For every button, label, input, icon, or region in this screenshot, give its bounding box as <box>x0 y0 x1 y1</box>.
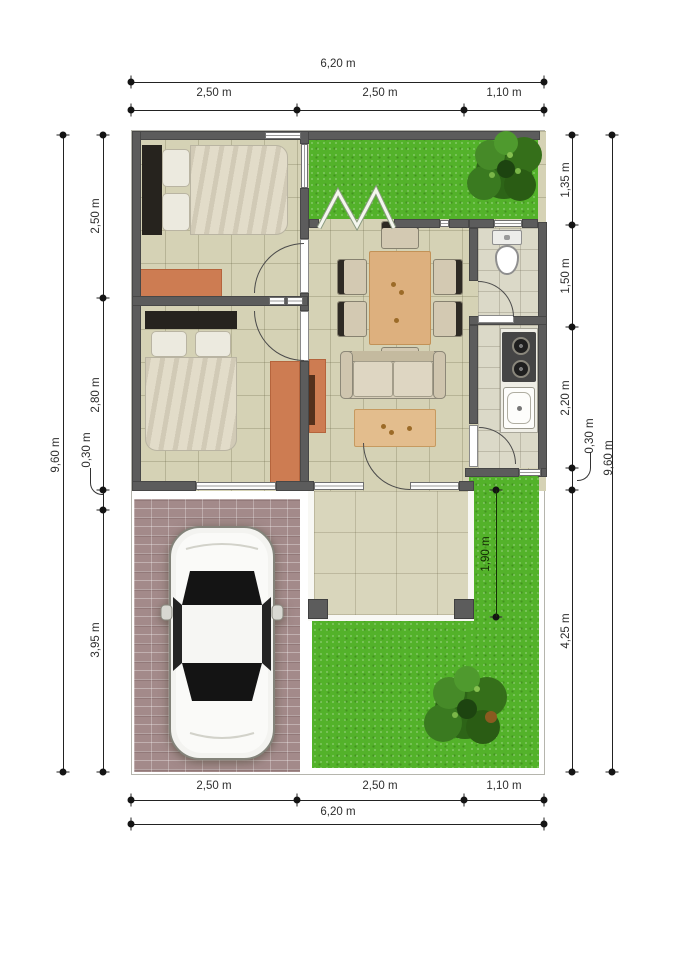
pillow <box>195 331 231 357</box>
dimension-marker <box>569 487 576 494</box>
dining-chair <box>337 301 367 337</box>
dimension-line <box>103 135 104 772</box>
wall <box>300 131 309 144</box>
sink-drain <box>517 406 522 411</box>
floor-plan-canvas: 6,20 m 2,50 m 2,50 m 1,10 m 2,50 m 2,50 … <box>0 0 679 960</box>
bedroom2-double-bed <box>145 311 237 451</box>
dimension-marker <box>609 132 616 139</box>
tree <box>415 659 517 759</box>
wall <box>469 228 478 281</box>
porch-floor <box>308 491 474 621</box>
car <box>160 519 284 767</box>
dimension-marker <box>100 487 107 494</box>
wall <box>469 219 494 228</box>
dimension-marker <box>461 797 468 804</box>
dim-right-total: 9,60 m <box>603 440 615 475</box>
dim-left-seg2: 0,30 m <box>81 432 93 467</box>
window <box>287 297 303 305</box>
stove-burner <box>512 337 530 355</box>
dimension-marker <box>128 797 135 804</box>
dim-top-seg1: 2,50 m <box>362 87 397 99</box>
toilet-tank <box>492 230 522 245</box>
dimension-line <box>131 800 544 801</box>
dimension-marker <box>100 769 107 776</box>
dimension-marker <box>569 769 576 776</box>
dimension-marker <box>541 821 548 828</box>
dimension-marker <box>100 295 107 302</box>
dimension-marker <box>569 222 576 229</box>
wall <box>465 468 519 477</box>
dimension-line <box>572 135 573 772</box>
dimension-marker <box>541 79 548 86</box>
window <box>265 132 301 139</box>
dining-table <box>369 251 431 345</box>
wall <box>449 219 469 228</box>
dim-bottom-seg1: 2,50 m <box>362 780 397 792</box>
table-decor <box>381 424 386 429</box>
lot-plan <box>131 130 545 775</box>
dimension-marker <box>569 465 576 472</box>
pillow <box>151 331 187 357</box>
dim-bottom-seg2: 1,10 m <box>486 780 521 792</box>
window <box>440 220 449 227</box>
bed-blanket <box>145 357 237 451</box>
dimension-marker <box>60 769 67 776</box>
dimension-marker <box>128 821 135 828</box>
porch-pillar-right <box>454 599 474 619</box>
sofa-cushion <box>393 361 433 397</box>
bed-headboard <box>145 311 237 329</box>
flush-button <box>504 235 510 240</box>
dim-right-seg0: 1,35 m <box>560 162 572 197</box>
wall <box>541 468 547 477</box>
dining-chair <box>433 301 463 337</box>
dimension-marker <box>100 507 107 514</box>
bifold-door <box>317 184 397 231</box>
dim-left-seg3: 3,95 m <box>90 622 102 657</box>
kitchen-sink <box>503 387 535 429</box>
wall <box>394 219 440 228</box>
window <box>410 482 459 490</box>
table-decor <box>394 318 399 323</box>
pillow <box>162 149 190 187</box>
dimension-marker <box>461 107 468 114</box>
dimension-marker <box>569 132 576 139</box>
dim-top-total: 6,20 m <box>320 58 355 70</box>
stove-burner <box>512 360 530 378</box>
dimension-marker <box>294 107 301 114</box>
porch-pillar-left <box>308 599 328 619</box>
dimension-marker <box>541 107 548 114</box>
window <box>196 482 276 490</box>
dimension-marker <box>128 79 135 86</box>
stove <box>502 332 536 382</box>
tree <box>460 131 548 215</box>
leader-curve <box>577 452 591 481</box>
window <box>314 482 364 490</box>
wall <box>538 222 547 477</box>
dim-porch-depth: 1,90 m <box>480 536 492 571</box>
wall <box>522 219 538 228</box>
bedroom2-rug <box>270 361 300 485</box>
window <box>494 220 522 227</box>
dimension-marker <box>294 797 301 804</box>
dimension-marker <box>609 769 616 776</box>
dining-chair <box>433 259 463 295</box>
dim-right-seg3: 0,30 m <box>584 418 596 453</box>
dim-right-seg1: 1,50 m <box>560 258 572 293</box>
wall <box>300 188 309 239</box>
bedroom1-rug <box>140 269 222 299</box>
dim-left-total: 9,60 m <box>50 437 62 472</box>
porch-dimension-line <box>496 490 497 617</box>
dim-right-seg4: 4,25 m <box>560 613 572 648</box>
dimension-marker <box>128 107 135 114</box>
table-decor <box>389 430 394 435</box>
dim-right-seg2: 2,20 m <box>560 380 572 415</box>
dimension-marker <box>60 132 67 139</box>
table-decor <box>399 290 404 295</box>
door-leaf <box>469 425 478 467</box>
dim-bottom-seg0: 2,50 m <box>196 780 231 792</box>
dimension-marker <box>569 324 576 331</box>
table-decor <box>391 282 396 287</box>
dimension-marker <box>541 797 548 804</box>
wall <box>132 481 196 491</box>
dim-bottom-total: 6,20 m <box>320 806 355 818</box>
bed-blanket <box>190 145 288 235</box>
dining-chair <box>337 259 367 295</box>
sofa-cushion <box>353 361 393 397</box>
table-decor <box>407 426 412 431</box>
wall <box>132 131 141 491</box>
dimension-line <box>131 824 544 825</box>
dim-top-seg0: 2,50 m <box>196 87 231 99</box>
sofa <box>340 351 446 399</box>
window <box>301 144 308 188</box>
wall <box>276 481 314 491</box>
sofa-arm <box>433 351 446 399</box>
hall-console <box>309 375 315 425</box>
sofa-arm <box>340 351 353 399</box>
dimension-line <box>131 110 544 111</box>
wall <box>469 325 478 424</box>
dim-top-seg2: 1,10 m <box>486 87 521 99</box>
coffee-table <box>354 409 436 447</box>
wall <box>300 361 309 491</box>
dimension-marker <box>100 132 107 139</box>
dimension-line <box>131 82 544 83</box>
dimension-line <box>63 135 64 772</box>
dim-left-seg1: 2,80 m <box>90 377 102 412</box>
window <box>519 469 541 476</box>
wall <box>459 481 474 491</box>
dim-left-seg0: 2,50 m <box>90 198 102 233</box>
bed-headboard <box>142 145 162 235</box>
bedroom1-double-bed <box>142 145 288 235</box>
window <box>269 297 285 305</box>
pillow <box>162 193 190 231</box>
